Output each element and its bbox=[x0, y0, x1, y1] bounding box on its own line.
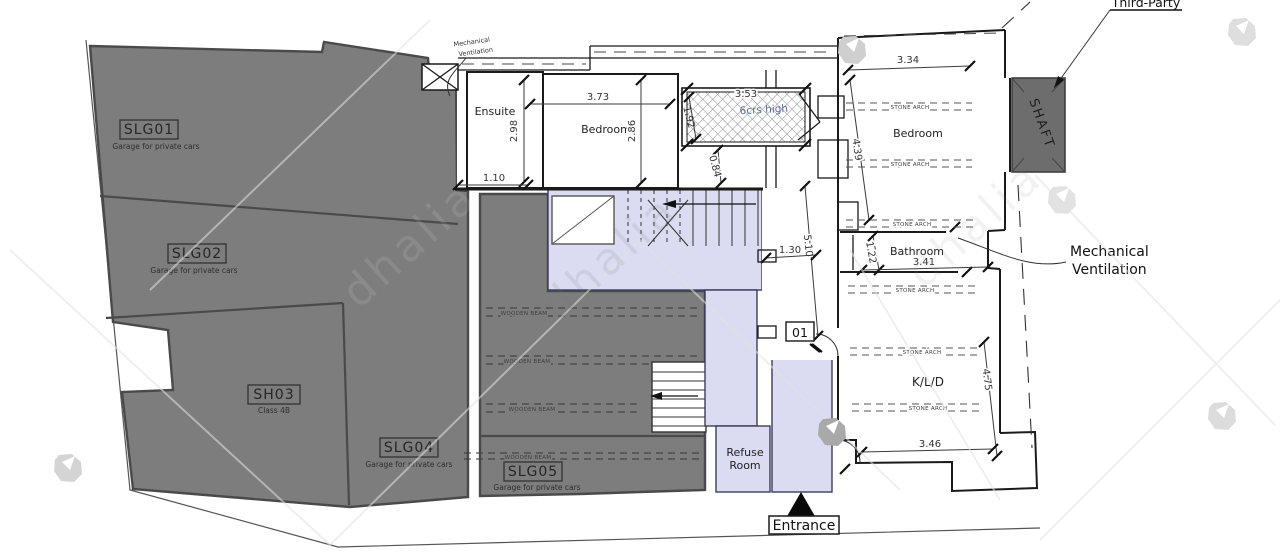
svg-text:5.10: 5.10 bbox=[801, 234, 814, 257]
unit-id: SLG02 bbox=[172, 246, 222, 262]
unit-desc: Class 4B bbox=[258, 406, 290, 415]
svg-text:1.10: 1.10 bbox=[483, 173, 505, 184]
svg-text:Room: Room bbox=[729, 459, 760, 472]
unit-id: SLG04 bbox=[384, 440, 434, 456]
svg-text:Refuse: Refuse bbox=[726, 446, 763, 459]
unit-id: SLG05 bbox=[508, 464, 558, 480]
svg-text:Third-Party: Third-Party bbox=[1111, 0, 1181, 10]
floor-plan-drawing: WOODEN BEAM WOODEN BEAM WOODEN BEAM WOOD… bbox=[0, 0, 1280, 552]
chimney-hatch: 3.53 6crs high bbox=[681, 83, 820, 151]
svg-text:STONE ARCH: STONE ARCH bbox=[903, 350, 942, 356]
room-label-ensuite: Ensuite bbox=[475, 105, 516, 118]
svg-text:01: 01 bbox=[792, 325, 808, 340]
unit-id: SLG01 bbox=[124, 122, 174, 138]
watermark-logo bbox=[1208, 402, 1236, 430]
dim-chimney-width: 3.53 bbox=[735, 89, 757, 100]
svg-text:STONE ARCH: STONE ARCH bbox=[891, 105, 930, 111]
svg-text:Entrance: Entrance bbox=[773, 518, 836, 534]
entrance-annotation: Entrance bbox=[769, 492, 839, 534]
wooden-beam-label: WOODEN BEAM bbox=[505, 455, 552, 461]
unit-desc: Garage for private cars bbox=[493, 483, 580, 492]
svg-text:1.30: 1.30 bbox=[779, 245, 801, 256]
svg-text:3.46: 3.46 bbox=[919, 439, 941, 450]
unit-desc: Garage for private cars bbox=[112, 142, 199, 151]
room-label-bedroom-right: Bedroom bbox=[893, 127, 943, 140]
svg-text:STONE ARCH: STONE ARCH bbox=[909, 406, 948, 412]
party-wall-dashed bbox=[1002, 2, 1030, 28]
watermark-logo bbox=[1228, 18, 1256, 46]
floor-plan-canvas: WOODEN BEAM WOODEN BEAM WOODEN BEAM WOOD… bbox=[0, 0, 1280, 552]
third-party-annotation: Third-Party bbox=[1054, 0, 1182, 88]
chimney-height-note: 6crs high bbox=[739, 103, 788, 118]
room-label-kld: K/L/D bbox=[912, 375, 944, 389]
garage-staircase bbox=[650, 362, 706, 432]
svg-text:2.86: 2.86 bbox=[627, 120, 638, 142]
room-label-bedroom-left: Bedroom bbox=[581, 123, 631, 136]
wooden-beam-label: WOODEN BEAM bbox=[504, 359, 551, 365]
ventilation-grille bbox=[422, 64, 458, 90]
wooden-beam-label: WOODEN BEAM bbox=[509, 407, 556, 413]
unit-id: SH03 bbox=[253, 387, 294, 403]
svg-text:3.73: 3.73 bbox=[587, 92, 609, 103]
unit-desc: Garage for private cars bbox=[150, 266, 237, 275]
svg-text:STONE ARCH: STONE ARCH bbox=[893, 222, 932, 228]
watermark-logo bbox=[1048, 186, 1076, 214]
svg-text:Ventilation: Ventilation bbox=[1072, 262, 1147, 278]
entrance-arrow bbox=[786, 492, 816, 518]
refuse-room-label: Refuse Room bbox=[726, 446, 763, 472]
watermark-logo bbox=[54, 454, 82, 482]
svg-text:2.98: 2.98 bbox=[509, 120, 520, 142]
svg-text:3.34: 3.34 bbox=[897, 55, 919, 66]
wooden-beam-label: WOODEN BEAM bbox=[501, 311, 548, 317]
party-wall-dashed bbox=[1018, 185, 1032, 448]
svg-text:STONE ARCH: STONE ARCH bbox=[891, 162, 930, 168]
svg-text:Ventilation: Ventilation bbox=[458, 46, 493, 59]
